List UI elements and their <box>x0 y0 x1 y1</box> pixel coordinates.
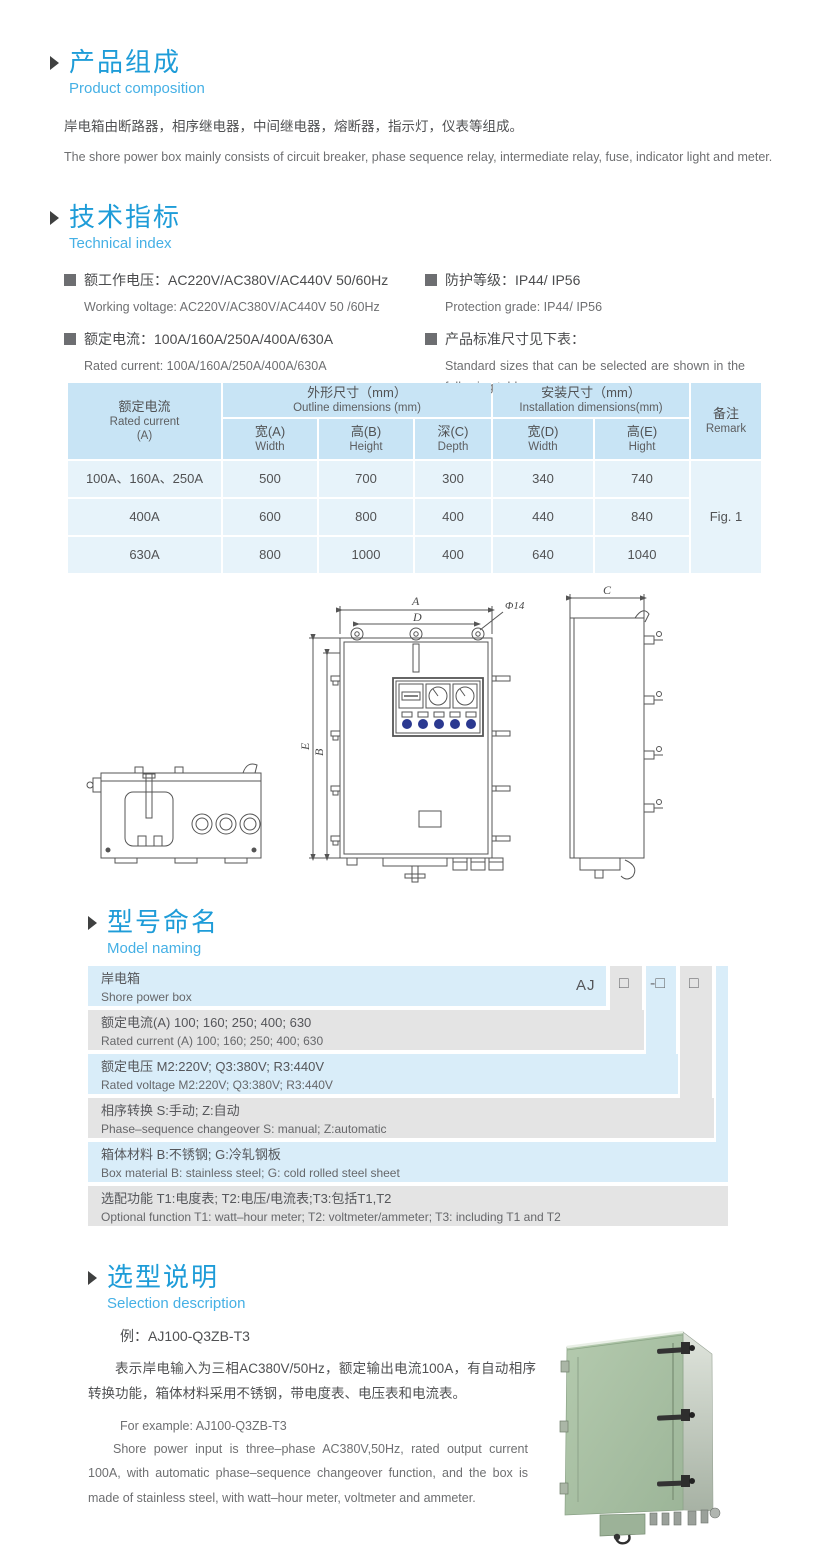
spec-zh: 额工作电压：AC220V/AC380V/AC440V 50/60Hz <box>84 270 388 290</box>
section-title-zh: 选型说明 <box>107 1263 245 1292</box>
table-cell: 640 <box>493 537 593 573</box>
selection-desc-zh: 表示岸电输入为三相AC380V/50Hz，额定输出电流100A，有自动相序转换功… <box>88 1356 536 1407</box>
dim-label-c: C <box>603 583 612 597</box>
table-subheader: 宽(D)Width <box>493 419 593 459</box>
section-arrow-icon <box>88 1271 97 1285</box>
naming-row: 岸电箱 Shore power box <box>88 966 606 1006</box>
section-header: 产品组成 Product composition <box>50 48 780 97</box>
dim-label-a: A <box>411 594 420 608</box>
table-cell: 840 <box>595 499 689 535</box>
composition-text-zh: 岸电箱由断路器，相序继电器，中间继电器，熔断器，指示灯，仪表等组成。 <box>64 117 780 137</box>
bottom-view-drawing <box>87 764 261 863</box>
model-naming-table: 岸电箱 Shore power box 额定电流(A) 100; 160; 25… <box>88 966 728 1228</box>
model-placeholder-box: -□ <box>650 975 665 993</box>
selection-example-zh: 例：AJ100-Q3ZB-T3 <box>120 1326 548 1346</box>
composition-text-en: The shore power box mainly consists of c… <box>64 148 780 167</box>
table-cell: 400 <box>415 499 491 535</box>
indicator-lights <box>402 712 476 729</box>
section-title-en: Product composition <box>69 80 205 97</box>
section-model-naming: 型号命名 Model naming <box>88 908 788 957</box>
table-subheader: 高(B)Height <box>319 419 413 459</box>
table-header-remark: 备注 Remark <box>691 383 761 459</box>
section-title-zh: 型号命名 <box>107 908 219 937</box>
dim-label-e: E <box>298 742 312 751</box>
table-cell: 400A <box>68 499 221 535</box>
table-cell: 1000 <box>319 537 413 573</box>
section-header: 型号命名 Model naming <box>88 908 788 957</box>
table-header-outline-group: 外形尺寸（mm） Outline dimensions (mm) <box>223 383 491 417</box>
table-cell: 300 <box>415 461 491 497</box>
technical-drawings: A D Φ14 E B C <box>75 578 755 890</box>
spec-zh: 产品标准尺寸见下表： <box>445 329 585 349</box>
table-subheader: 宽(A)Width <box>223 419 317 459</box>
naming-row: 额定电流(A) 100; 160; 250; 400; 630 Rated cu… <box>88 1010 644 1050</box>
section-arrow-icon <box>50 211 59 225</box>
spec-item: 防护等级：IP44/ IP56 Protection grade: IP44/ … <box>425 270 755 318</box>
model-placeholder-box: □ <box>619 975 629 993</box>
table-cell: 630A <box>68 537 221 573</box>
naming-row: 箱体材料 B:不锈钢; G:冷轧钢板 Box material B: stain… <box>88 1142 728 1182</box>
section-title-en: Selection description <box>107 1295 245 1312</box>
table-cell-remark: Fig. 1 <box>691 461 761 573</box>
bullet-square-icon <box>64 333 76 345</box>
table-cell: 340 <box>493 461 593 497</box>
model-prefix: AJ <box>576 977 596 994</box>
section-title-en: Technical index <box>69 235 181 252</box>
spec-en: Rated current: 100A/160A/250A/400A/630A <box>84 356 425 377</box>
section-technical-index: 技术指标 Technical index 额工作电压：AC220V/AC380V… <box>50 203 780 409</box>
naming-row: 相序转换 S:手动; Z:自动 Phase–sequence changeove… <box>88 1098 714 1138</box>
section-title-zh: 技术指标 <box>69 203 181 232</box>
table-cell: 800 <box>319 499 413 535</box>
section-arrow-icon <box>88 916 97 930</box>
section-header: 技术指标 Technical index <box>50 203 780 252</box>
table-header-install-group: 安装尺寸（mm） Installation dimensions(mm) <box>493 383 689 417</box>
table-cell: 700 <box>319 461 413 497</box>
table-cell: 800 <box>223 537 317 573</box>
naming-strip <box>716 966 728 1142</box>
dim-label-b: B <box>312 748 326 756</box>
spec-item: 额工作电压：AC220V/AC380V/AC440V 50/60Hz Worki… <box>64 270 425 318</box>
table-cell: 740 <box>595 461 689 497</box>
section-header: 选型说明 Selection description <box>88 1263 548 1312</box>
table-cell: 1040 <box>595 537 689 573</box>
section-title-zh: 产品组成 <box>69 48 205 77</box>
table-subheader: 深(C)Depth <box>415 419 491 459</box>
table-subheader: 高(E)Hight <box>595 419 689 459</box>
section-title-en: Model naming <box>107 940 219 957</box>
section-product-composition: 产品组成 Product composition 岸电箱由断路器，相序继电器，中… <box>50 48 780 167</box>
dim-label-hole: Φ14 <box>505 600 525 612</box>
spec-zh: 额定电流：100A/160A/250A/400A/630A <box>84 329 333 349</box>
selection-example-en: For example: AJ100-Q3ZB-T3 <box>120 1419 548 1433</box>
front-view-drawing <box>309 606 510 882</box>
table-header-rated-current: 额定电流 Rated current (A) <box>68 383 221 459</box>
spec-en: Protection grade: IP44/ IP56 <box>445 297 755 318</box>
table-cell: 500 <box>223 461 317 497</box>
naming-row: 选配功能 T1:电度表; T2:电压/电流表;T3:包括T1,T2 Option… <box>88 1186 728 1226</box>
shore-power-box-photo <box>560 1332 720 1543</box>
side-view-drawing <box>570 594 663 879</box>
dim-label-d: D <box>412 610 422 624</box>
datasheet-page: 产品组成 Product composition 岸电箱由断路器，相序继电器，中… <box>0 0 830 1568</box>
table-cell: 440 <box>493 499 593 535</box>
product-photo <box>545 1295 800 1560</box>
section-selection-description: 选型说明 Selection description 例：AJ100-Q3ZB-… <box>88 1263 548 1510</box>
section-arrow-icon <box>50 56 59 70</box>
bullet-square-icon <box>425 333 437 345</box>
meter-panel <box>393 678 483 736</box>
naming-row: 额定电压 M2:220V; Q3:380V; R3:440V Rated vol… <box>88 1054 678 1094</box>
bullet-square-icon <box>425 274 437 286</box>
selection-desc-en: Shore power input is three–phase AC380V,… <box>88 1437 528 1510</box>
spec-item: 额定电流：100A/160A/250A/400A/630A Rated curr… <box>64 329 425 377</box>
dimensions-table: 额定电流 Rated current (A) 外形尺寸（mm） Outline … <box>68 383 761 573</box>
table-cell: 100A、160A、250A <box>68 461 221 497</box>
spec-zh: 防护等级：IP44/ IP56 <box>445 270 580 290</box>
table-cell: 600 <box>223 499 317 535</box>
table-cell: 400 <box>415 537 491 573</box>
bullet-square-icon <box>64 274 76 286</box>
spec-en: Working voltage: AC220V/AC380V/AC440V 50… <box>84 297 425 318</box>
model-placeholder-box: □ <box>689 975 699 993</box>
